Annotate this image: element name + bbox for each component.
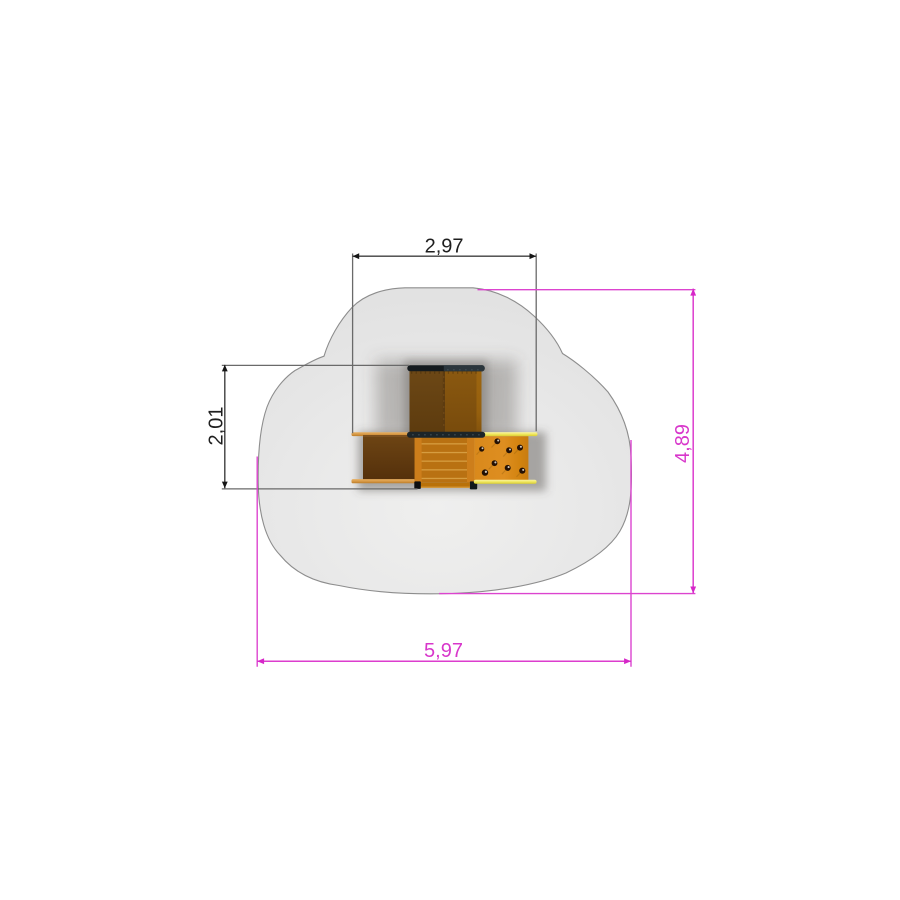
svg-text:2,97: 2,97 [425, 236, 464, 258]
svg-text:2,01: 2,01 [206, 407, 228, 446]
svg-text:5,97: 5,97 [424, 640, 463, 662]
svg-text:4,89: 4,89 [672, 424, 694, 463]
